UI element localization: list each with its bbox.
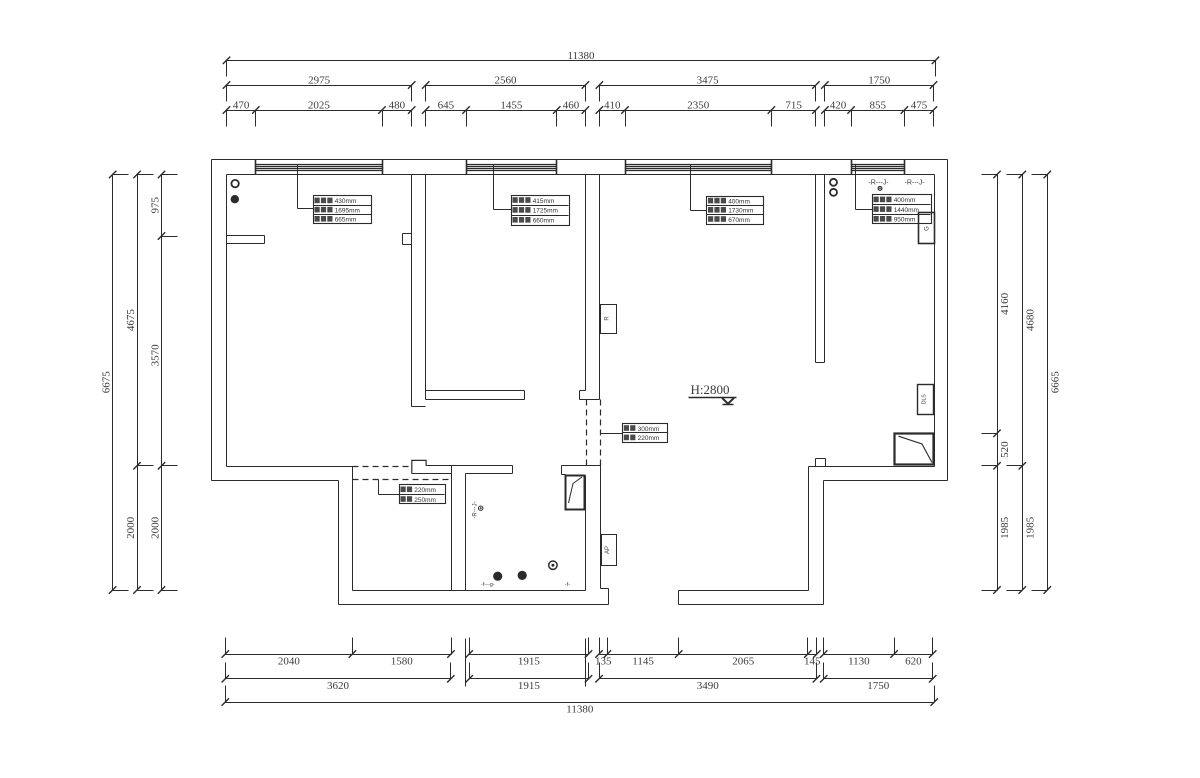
svg-text:1985: 1985 (999, 516, 1011, 539)
svg-text:1440mm: 1440mm (894, 207, 919, 214)
svg-text:1750: 1750 (868, 75, 891, 87)
svg-text:400mm: 400mm (728, 198, 750, 205)
svg-text:400mm: 400mm (894, 197, 916, 204)
svg-text:1725mm: 1725mm (533, 208, 558, 215)
svg-text:-R---J-: -R---J- (868, 180, 889, 187)
svg-text:4160: 4160 (999, 292, 1011, 315)
svg-text:3475: 3475 (697, 75, 720, 87)
svg-text:520: 520 (999, 441, 1011, 458)
svg-text:470: 470 (233, 100, 250, 112)
svg-text:AP: AP (605, 546, 611, 554)
svg-text:DLS: DLS (922, 394, 928, 404)
svg-text:1750: 1750 (867, 680, 890, 692)
svg-text:1695mm: 1695mm (335, 207, 360, 214)
svg-text:-R---J-: -R---J- (473, 501, 479, 518)
svg-text:2065: 2065 (732, 655, 755, 667)
svg-text:1915: 1915 (518, 655, 541, 667)
svg-text:415mm: 415mm (533, 198, 555, 205)
svg-text:975: 975 (149, 197, 161, 214)
svg-text:R: R (604, 316, 610, 321)
svg-text:220mm: 220mm (638, 435, 660, 442)
svg-text:H:2800: H:2800 (691, 382, 730, 397)
svg-text:2975: 2975 (308, 75, 331, 87)
svg-text:4675: 4675 (125, 309, 137, 332)
svg-text:410: 410 (604, 100, 621, 112)
svg-text:1455: 1455 (500, 100, 523, 112)
svg-text:6675: 6675 (100, 371, 112, 394)
svg-text:1985: 1985 (1025, 516, 1037, 539)
svg-text:645: 645 (438, 100, 455, 112)
svg-text:2000: 2000 (125, 516, 137, 539)
svg-text:220mm: 220mm (414, 487, 436, 494)
svg-text:1915: 1915 (518, 680, 541, 692)
svg-text:145: 145 (804, 655, 821, 667)
svg-text:855: 855 (870, 100, 887, 112)
svg-text:480: 480 (389, 100, 406, 112)
svg-text:250mm: 250mm (414, 497, 436, 504)
svg-text:950mm: 950mm (894, 217, 916, 224)
svg-text:460: 460 (563, 100, 580, 112)
svg-text:2025: 2025 (308, 100, 331, 112)
svg-text:3620: 3620 (327, 680, 350, 692)
svg-text:300mm: 300mm (638, 426, 660, 433)
svg-text:1580: 1580 (391, 655, 414, 667)
svg-text:665mm: 665mm (335, 217, 357, 224)
svg-text:11380: 11380 (566, 703, 594, 715)
svg-text:715: 715 (785, 100, 802, 112)
svg-text:11380: 11380 (567, 50, 595, 62)
svg-text:430mm: 430mm (335, 198, 357, 205)
svg-text:670mm: 670mm (728, 217, 750, 224)
svg-text:2040: 2040 (278, 655, 301, 667)
svg-text:4680: 4680 (1025, 309, 1037, 332)
svg-text:6665: 6665 (1050, 371, 1062, 394)
svg-text:-R---J-: -R---J- (904, 180, 925, 187)
svg-text:2000: 2000 (149, 516, 161, 539)
svg-text:-f-: -f- (565, 582, 570, 588)
svg-text:2350: 2350 (687, 100, 710, 112)
svg-text:1730mm: 1730mm (728, 208, 753, 215)
svg-text:1130: 1130 (848, 655, 870, 667)
svg-text:620: 620 (905, 655, 922, 667)
svg-text:3490: 3490 (697, 680, 720, 692)
svg-text:1145: 1145 (632, 655, 654, 667)
svg-text:G: G (924, 226, 930, 231)
svg-text:-f---g-: -f---g- (481, 582, 495, 588)
svg-text:475: 475 (911, 100, 928, 112)
svg-text:3570: 3570 (149, 344, 161, 367)
svg-text:660mm: 660mm (533, 218, 555, 225)
svg-text:420: 420 (830, 100, 847, 112)
svg-text:2560: 2560 (495, 75, 518, 87)
